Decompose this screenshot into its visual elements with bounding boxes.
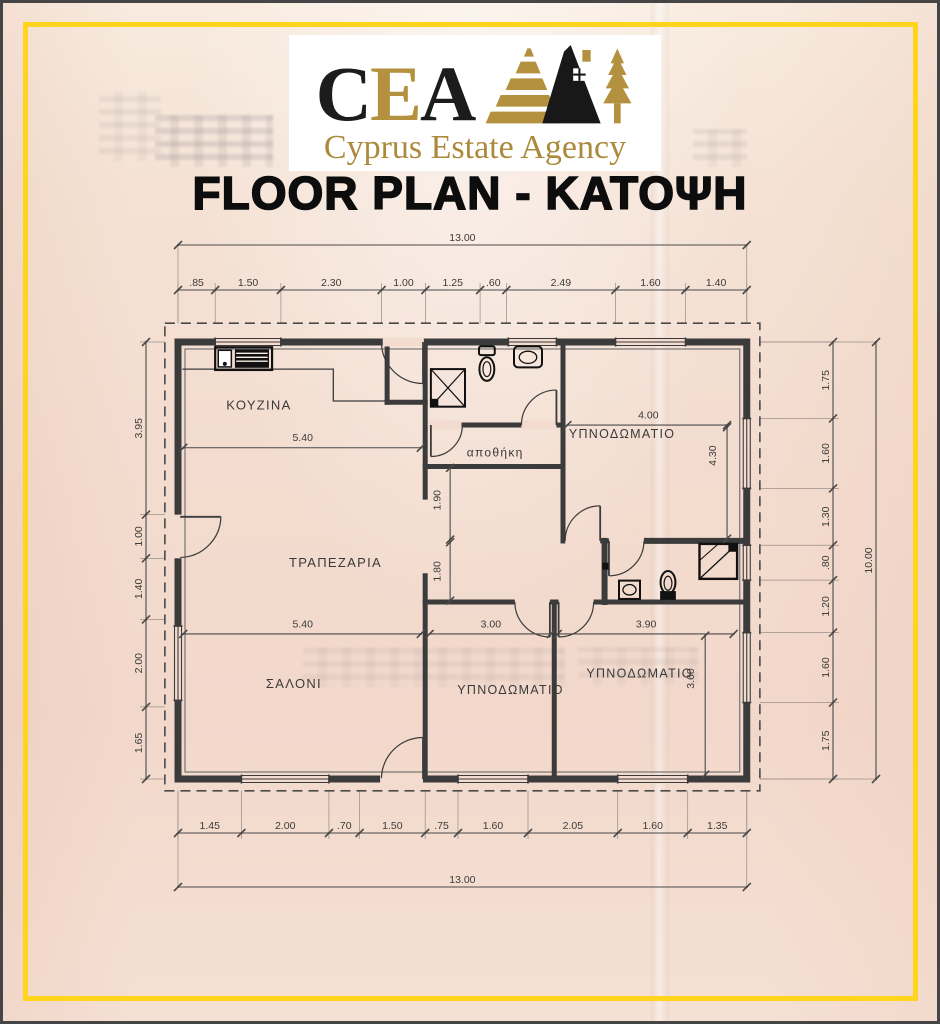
room-label-dining: ΤΡΑΠΕΖΑΡΙΑ <box>289 555 382 570</box>
floor-plan: 13.00.851.502.301.001.25.602.491.601.401… <box>63 221 923 921</box>
dimension-label: 1.25 <box>443 277 464 289</box>
dimension-chains: 13.00.851.502.301.001.25.602.491.601.401… <box>133 232 880 891</box>
dimension-label: 1.00 <box>133 526 145 547</box>
dimension-label: .80 <box>820 555 832 570</box>
dimension-label: 2.49 <box>551 277 572 289</box>
dimension-label: 1.35 <box>707 820 728 832</box>
dimension-label: .75 <box>434 820 449 832</box>
bleed-through-mark <box>693 129 747 167</box>
dimension-label: 13.00 <box>449 232 475 244</box>
dimension-label: 3.60 <box>685 668 697 689</box>
bleed-through-mark <box>99 91 161 161</box>
dimension-label: 13.00 <box>449 874 475 886</box>
page-title: FLOOR PLAN - ΚΑΤΟΨΗ <box>3 166 937 220</box>
dimension-label: 1.90 <box>432 490 444 511</box>
dimension-label: .60 <box>486 277 501 289</box>
dimension-label: 1.40 <box>133 579 145 600</box>
dimension-label: 1.00 <box>393 277 414 289</box>
dimension-label: 1.60 <box>820 443 832 464</box>
dimension-label: .70 <box>337 820 352 832</box>
dimension-label: 1.80 <box>432 561 444 582</box>
dimension-label: 10.00 <box>863 547 875 573</box>
dimension-label: .85 <box>189 277 204 289</box>
kitchen-counter <box>182 369 385 401</box>
toilet-icon <box>479 346 495 355</box>
dimension-label: 2.00 <box>133 653 145 674</box>
dimension-label: 1.20 <box>820 596 832 617</box>
dimension-label: 1.65 <box>133 733 145 754</box>
dimension-label: 1.60 <box>642 820 663 832</box>
dimension-label: 4.00 <box>638 409 659 421</box>
washbasin-icon <box>619 581 640 599</box>
dimension-label: 1.50 <box>238 277 259 289</box>
agency-logo: CEA <box>289 35 661 171</box>
bleed-through-mark <box>155 115 273 167</box>
dimension-label: 3.00 <box>481 618 502 630</box>
room-label-living: ΣΑΛΟΝΙ <box>266 676 322 691</box>
room-label-storage: αποθήκη <box>467 445 524 459</box>
dimension-label: 5.40 <box>292 432 313 444</box>
dimension-label: 1.40 <box>706 277 727 289</box>
room-label-bedroom-bottom-middle: ΥΠΝΟΔΩΜΑΤΙΟ <box>457 683 564 697</box>
dimension-label: 5.40 <box>292 618 313 630</box>
dimension-label: 2.05 <box>563 820 584 832</box>
dimension-label: 1.30 <box>820 506 832 527</box>
room-label-bedroom-top-right: ΥΠΝΟΔΩΜΑΤΙΟ <box>569 427 676 441</box>
dimension-label: 1.45 <box>200 820 221 832</box>
dimension-label: 3.90 <box>636 618 657 630</box>
pyramid-house-tree-icon <box>484 43 634 127</box>
agency-name: Cyprus Estate Agency <box>324 131 626 165</box>
dimension-label: 1.60 <box>640 277 661 289</box>
dimension-label: 1.75 <box>820 730 832 751</box>
dimension-label: 1.50 <box>382 820 403 832</box>
dimension-label: 1.75 <box>820 370 832 391</box>
dimension-label: 4.30 <box>707 445 719 466</box>
dimension-label: 1.60 <box>820 657 832 678</box>
logo-abbreviation: CEA <box>316 61 475 127</box>
room-label-bedroom-bottom-right: ΥΠΝΟΔΩΜΑΤΙΟ <box>586 667 693 681</box>
dimension-label: 3.95 <box>133 418 145 439</box>
plot-boundary <box>165 323 760 791</box>
dimension-label: 1.60 <box>483 820 504 832</box>
dimension-label: 2.00 <box>275 820 296 832</box>
room-label-kitchen: ΚΟΥΖΙΝΑ <box>226 398 291 413</box>
dimension-label: 2.30 <box>321 277 342 289</box>
scanned-sheet: CEA <box>0 0 940 1024</box>
